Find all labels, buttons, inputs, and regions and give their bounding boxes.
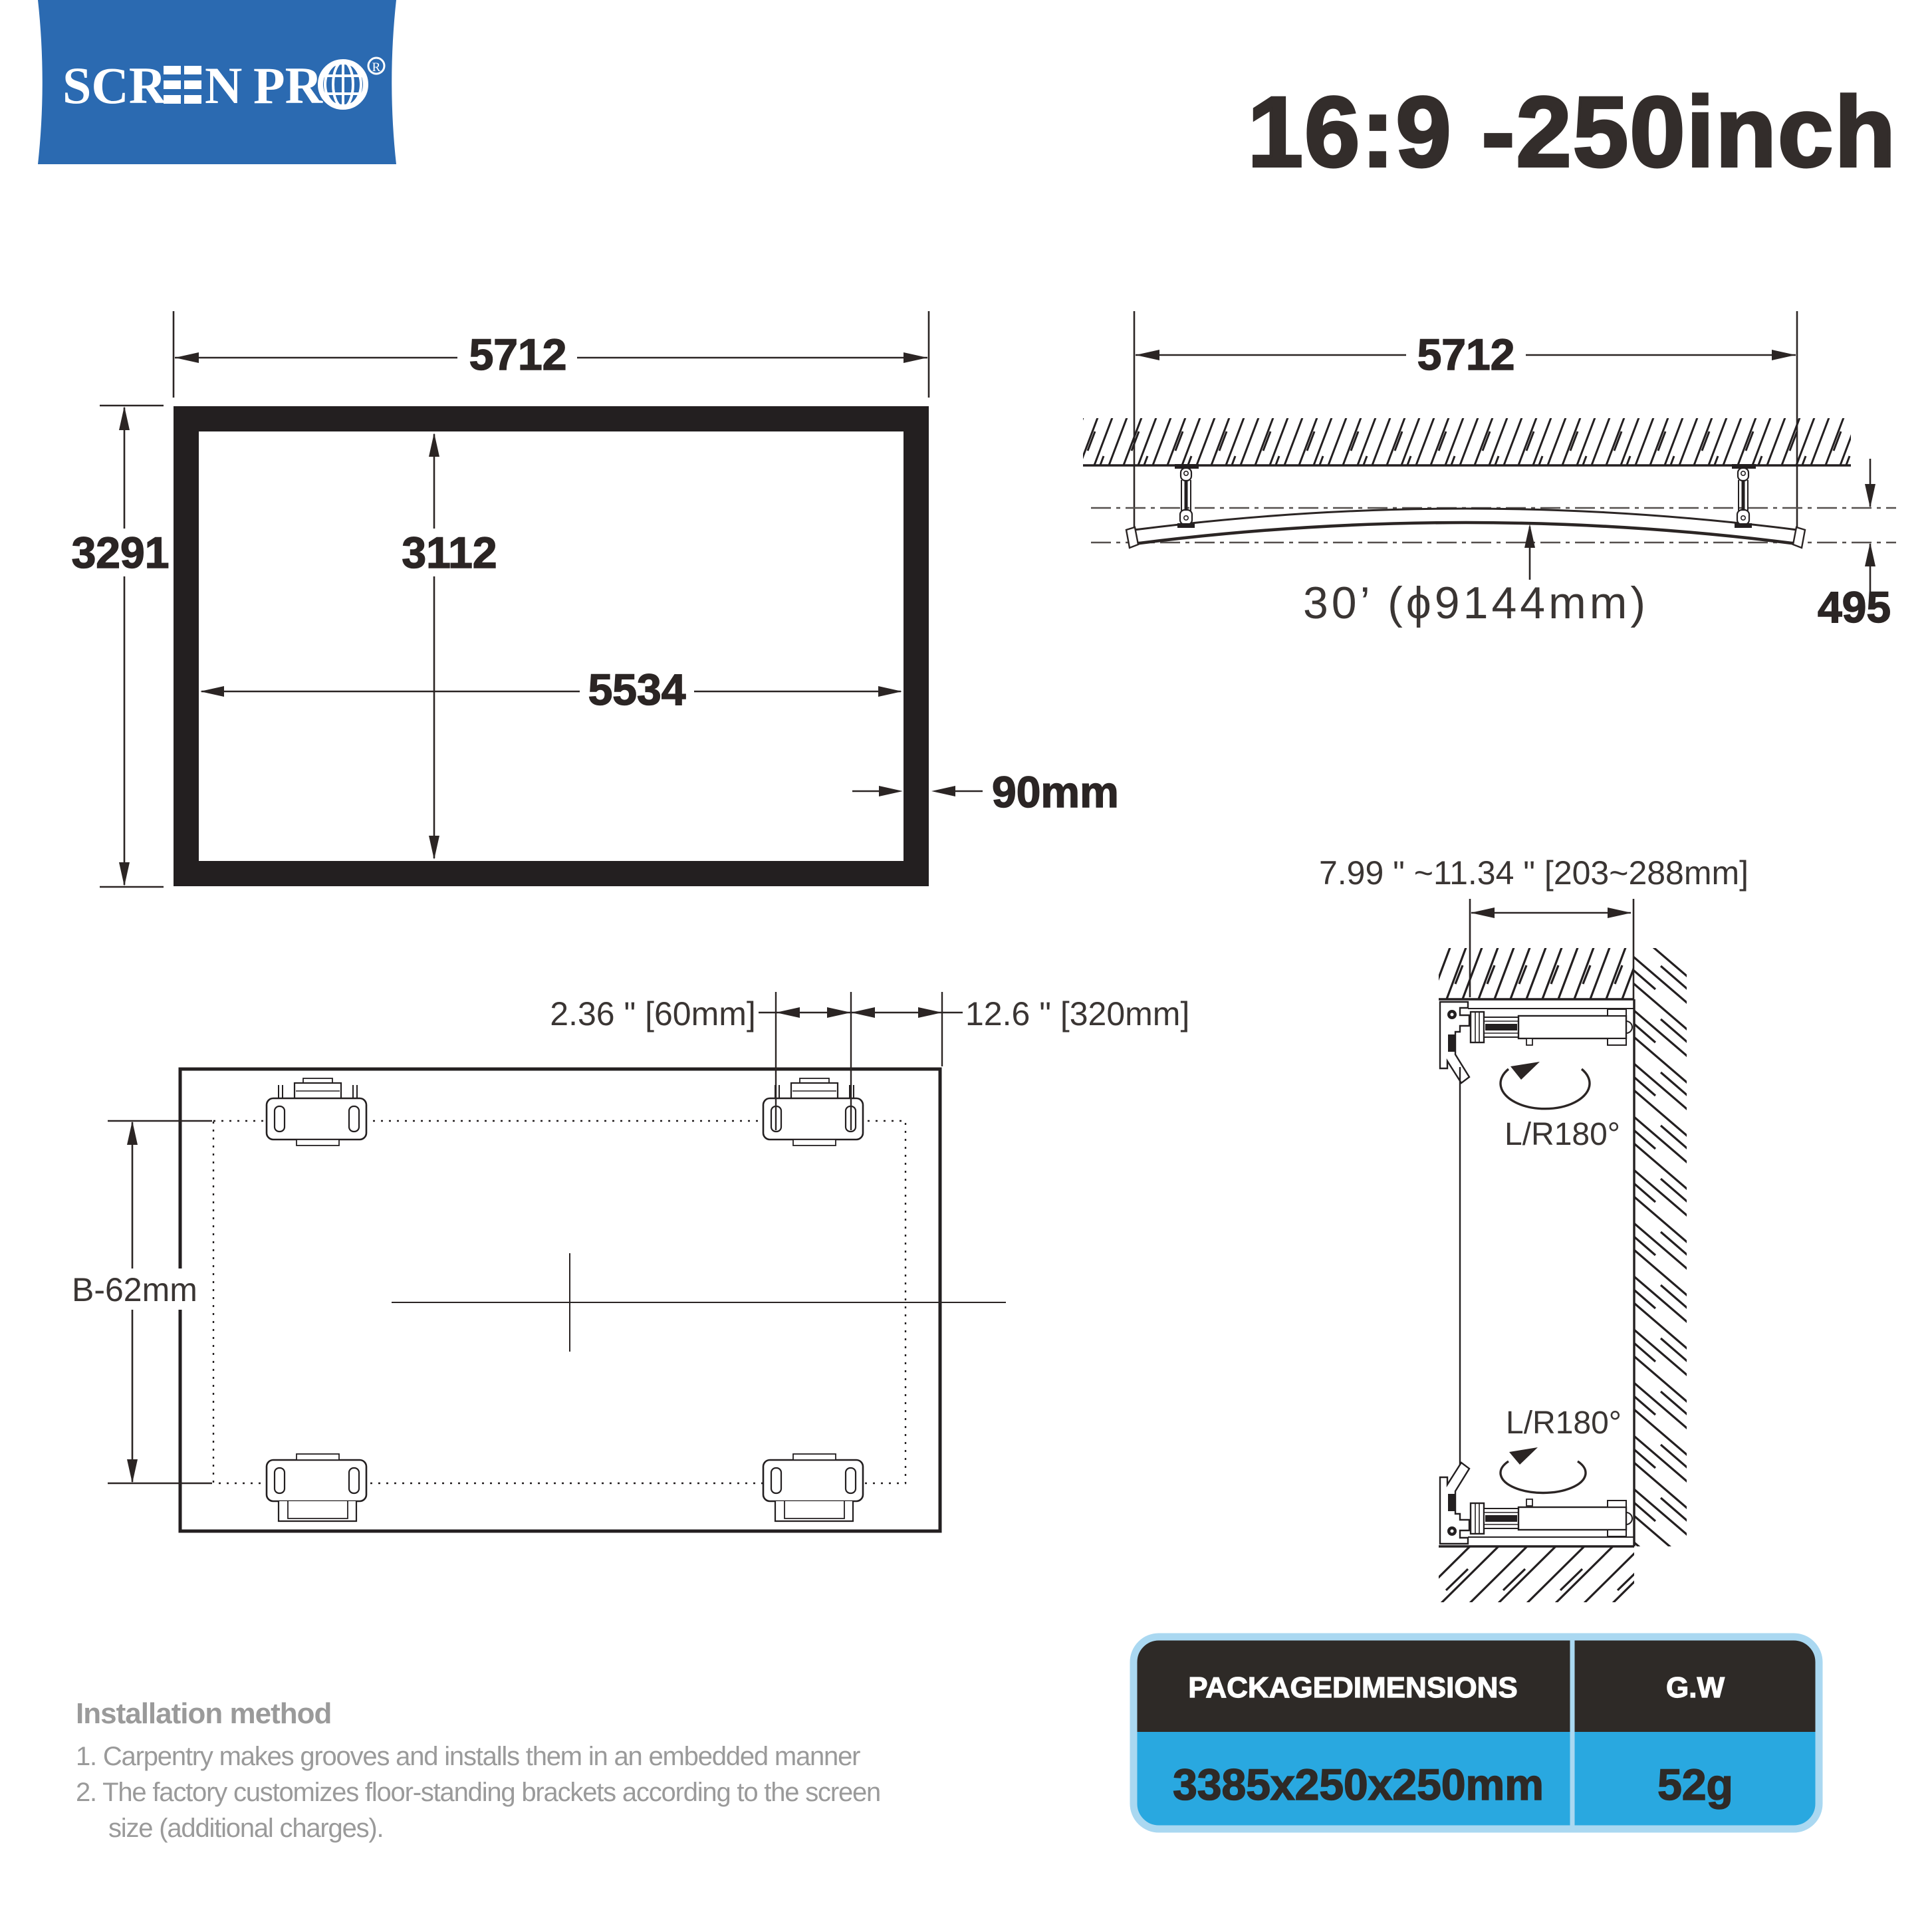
svg-text:N: N: [205, 57, 242, 114]
svg-text:5712: 5712: [1417, 330, 1515, 379]
svg-text:2. The factory customizes floo: 2. The factory customizes floor-standing…: [76, 1778, 880, 1807]
svg-text:12.6 " [320mm]: 12.6 " [320mm]: [965, 995, 1189, 1032]
svg-text:30’ (ϕ9144mm): 30’ (ϕ9144mm): [1303, 578, 1649, 628]
svg-text:B-62mm: B-62mm: [72, 1271, 197, 1308]
svg-text:PR: PR: [253, 57, 324, 114]
svg-text:3385x250x250mm: 3385x250x250mm: [1173, 1760, 1544, 1809]
svg-text:L/R180°: L/R180°: [1505, 1117, 1620, 1152]
svg-text:5534: 5534: [588, 665, 686, 714]
svg-text:90mm: 90mm: [992, 767, 1119, 816]
svg-text:3291: 3291: [72, 528, 170, 577]
svg-text:16:9 -250inch: 16:9 -250inch: [1248, 76, 1897, 187]
svg-text:5712: 5712: [469, 330, 567, 379]
svg-text:L/R180°: L/R180°: [1506, 1405, 1622, 1441]
svg-text:7.99 " ~11.34 " [203~288mm]: 7.99 " ~11.34 " [203~288mm]: [1319, 854, 1749, 892]
svg-text:2.36 " [60mm]: 2.36 " [60mm]: [550, 995, 759, 1032]
svg-text:G.W: G.W: [1666, 1671, 1725, 1704]
svg-text:495: 495: [1818, 582, 1891, 632]
svg-text:PACKAGEDIMENSIONS: PACKAGEDIMENSIONS: [1188, 1671, 1517, 1704]
svg-text:size (additional charges).: size (additional charges).: [108, 1814, 383, 1843]
svg-text:52g: 52g: [1657, 1760, 1733, 1809]
svg-text:3112: 3112: [402, 528, 497, 577]
svg-text:R: R: [372, 60, 381, 74]
svg-text:1. Carpentry makes grooves and: 1. Carpentry makes grooves and installs …: [76, 1742, 860, 1771]
svg-text:SCR: SCR: [62, 57, 168, 114]
svg-text:Installation method: Installation method: [76, 1697, 331, 1730]
